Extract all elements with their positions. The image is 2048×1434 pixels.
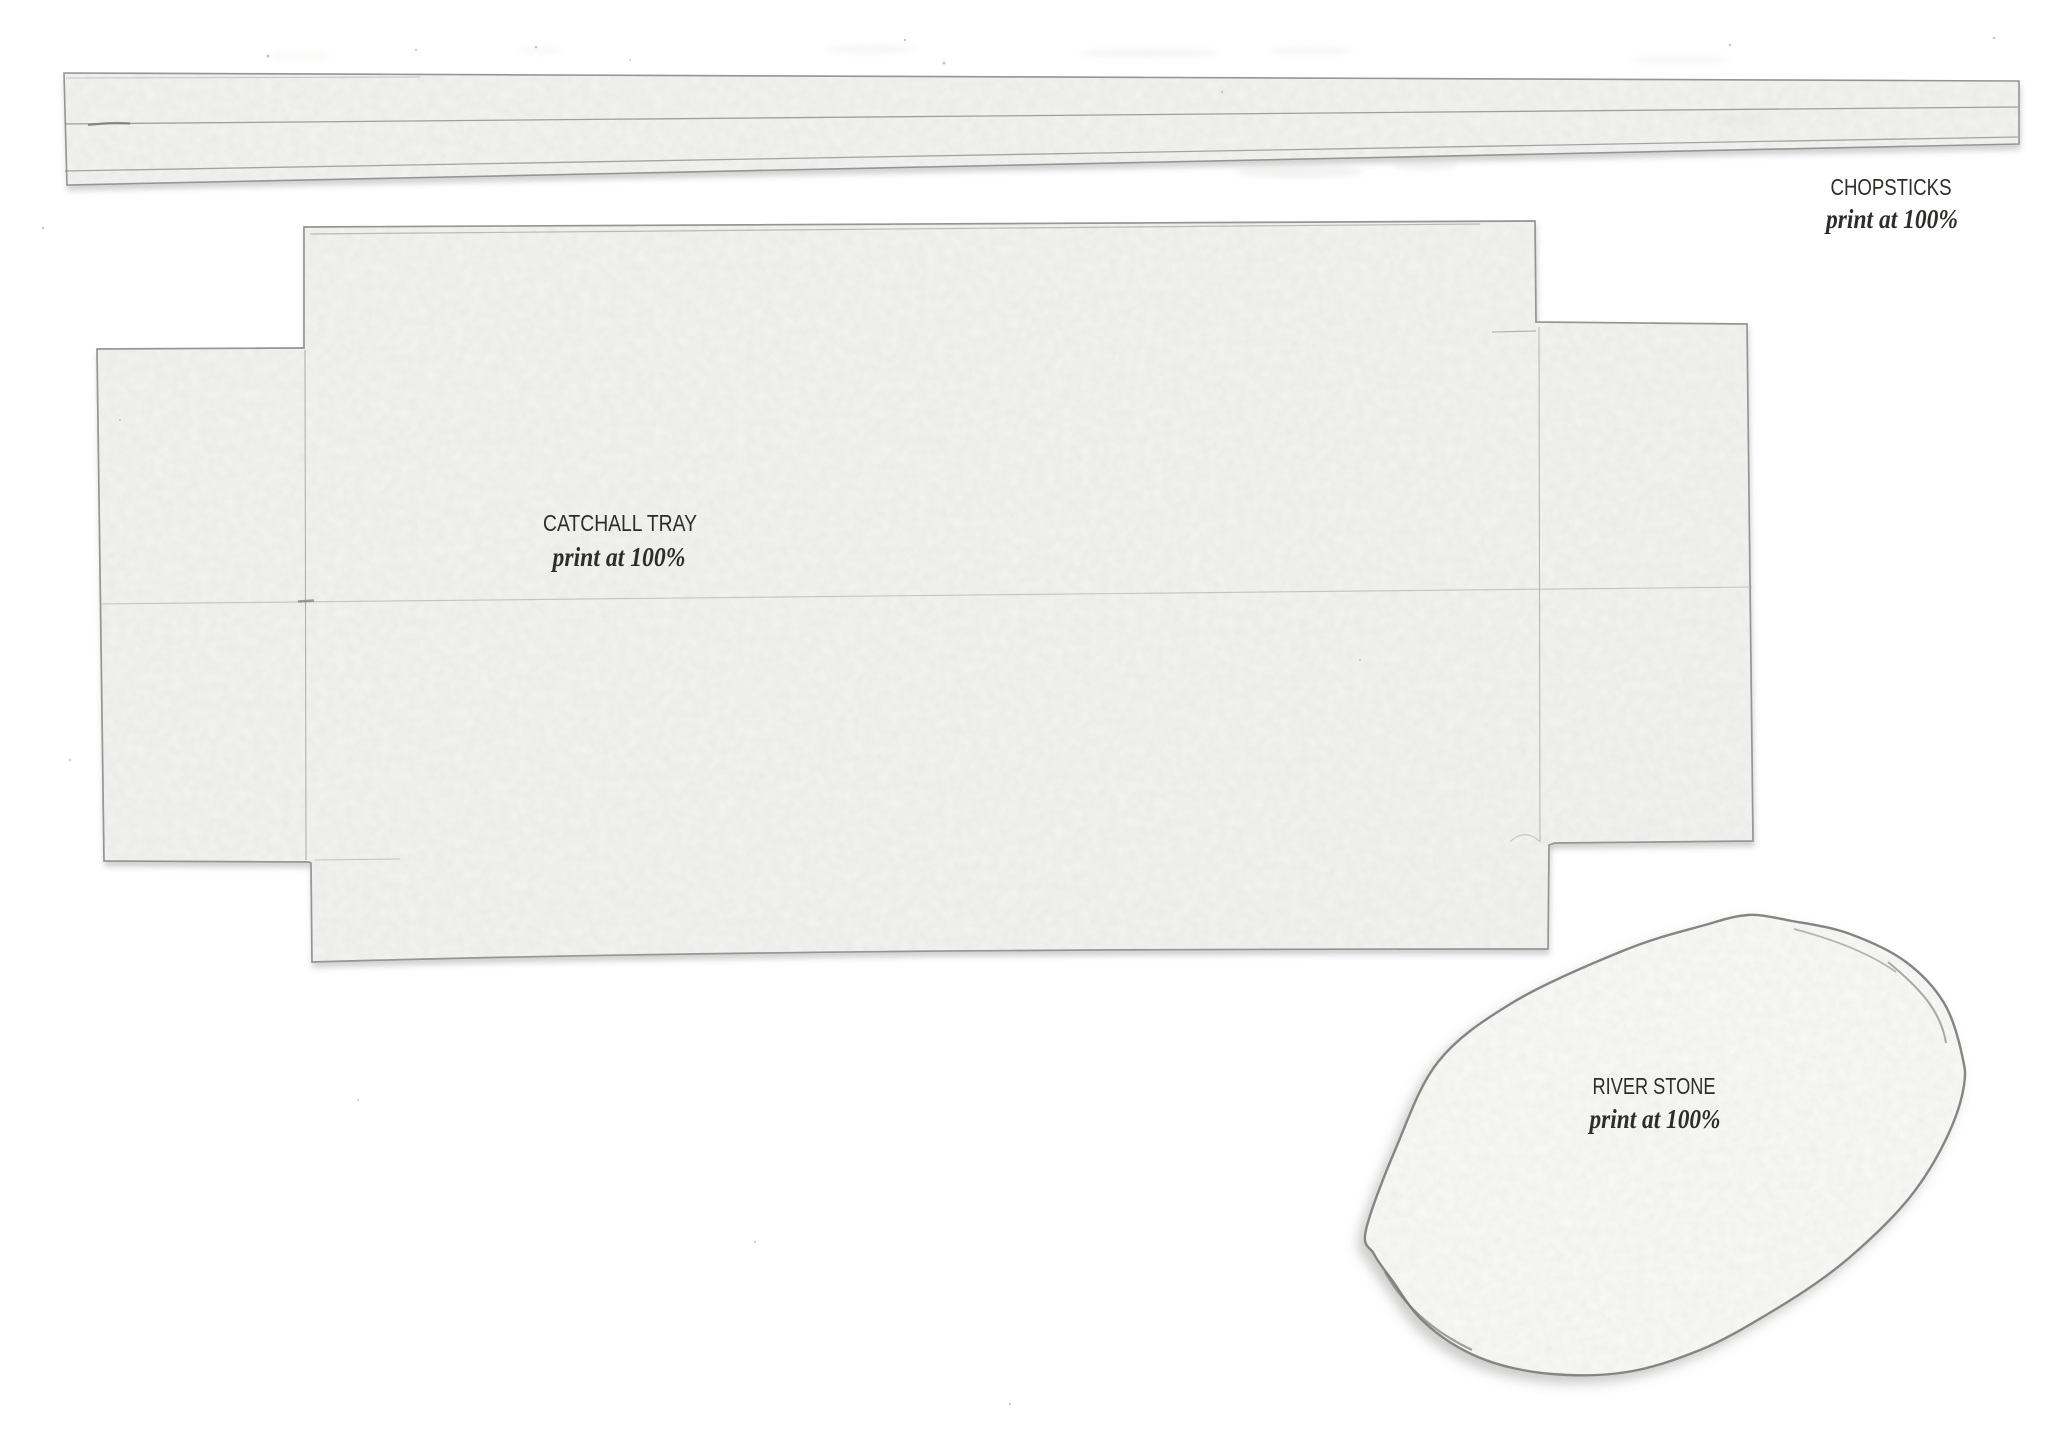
svg-text:RIVER STONE: RIVER STONE [1593, 1073, 1716, 1099]
svg-text:print at 100%: print at 100% [1824, 204, 1958, 234]
svg-text:print at 100%: print at 100% [1588, 1104, 1721, 1134]
svg-text:CATCHALL TRAY: CATCHALL TRAY [543, 510, 697, 536]
svg-text:CHOPSTICKS: CHOPSTICKS [1831, 174, 1952, 200]
svg-text:print at 100%: print at 100% [551, 542, 686, 572]
